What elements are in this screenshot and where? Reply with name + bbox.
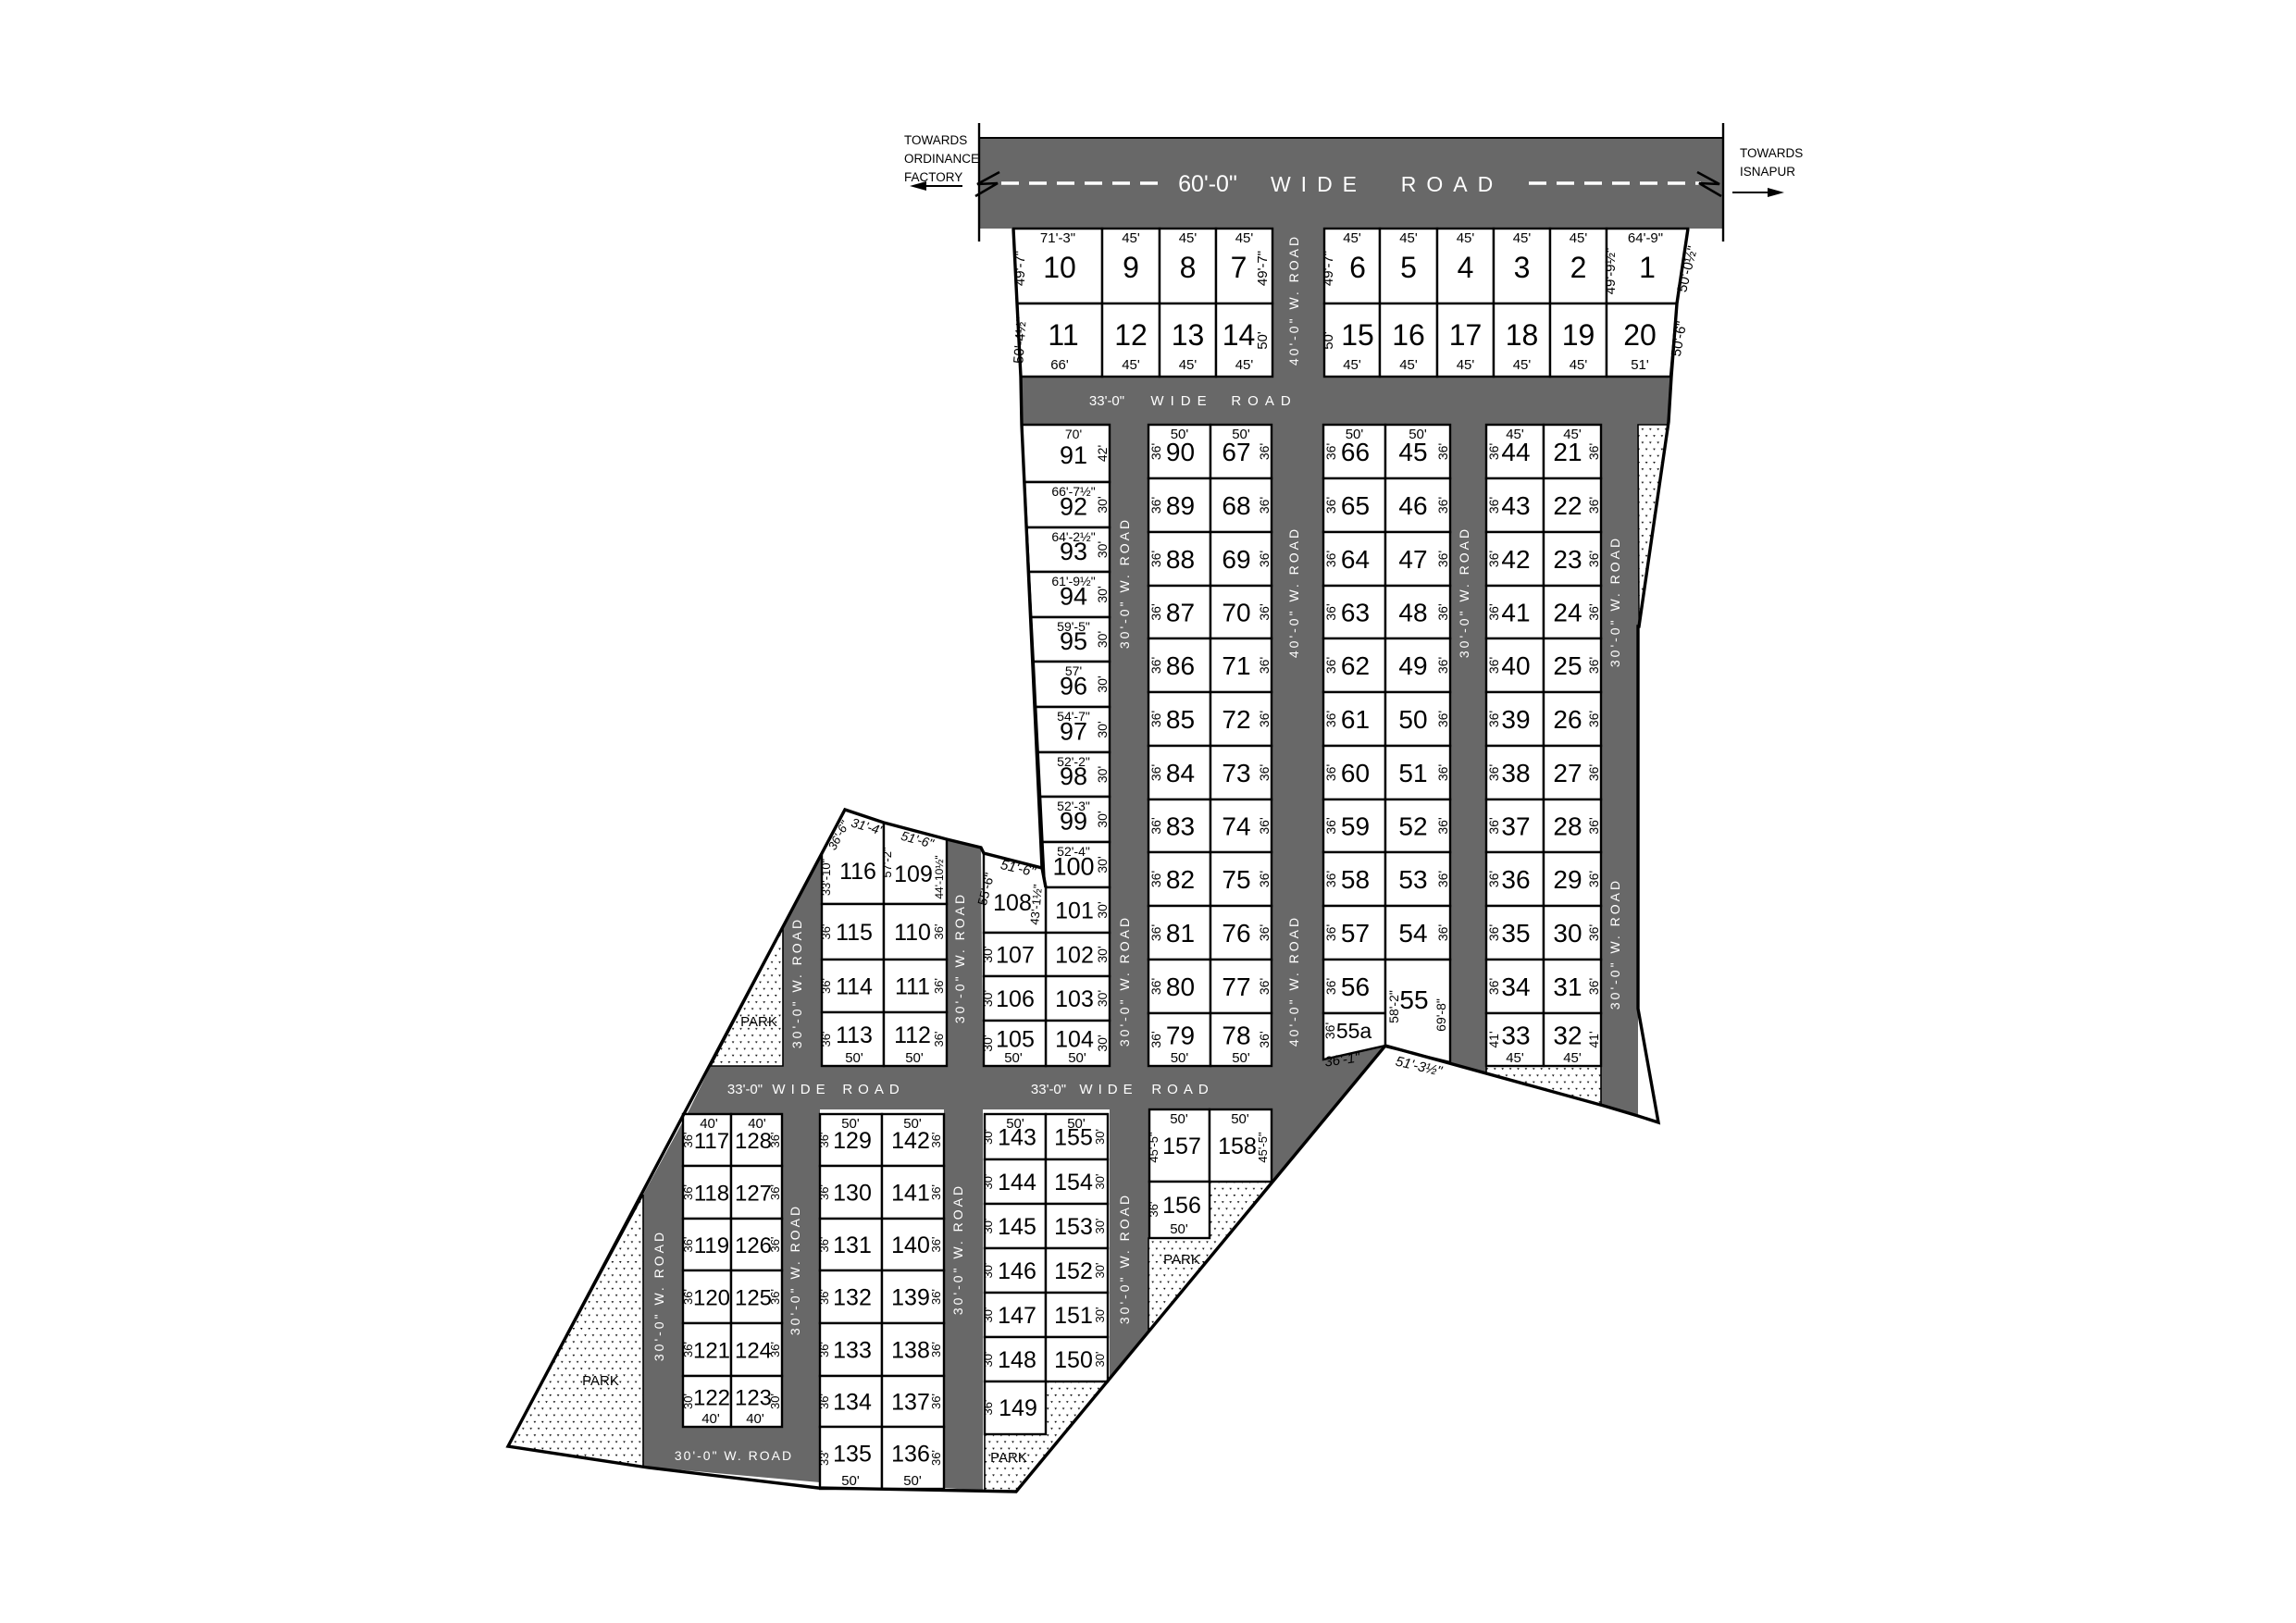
svg-text:36': 36' <box>1257 711 1272 727</box>
svg-text:138: 138 <box>891 1338 930 1364</box>
svg-text:45': 45' <box>1122 357 1140 373</box>
svg-text:36': 36' <box>817 1237 831 1253</box>
svg-text:149: 149 <box>999 1395 1037 1421</box>
svg-text:45': 45' <box>1570 230 1588 246</box>
svg-text:36': 36' <box>1257 817 1272 834</box>
svg-text:30'-0" W. ROAD: 30'-0" W. ROAD <box>1117 1193 1132 1324</box>
svg-text:144: 144 <box>998 1170 1036 1196</box>
svg-text:30': 30' <box>1095 946 1110 962</box>
svg-text:41': 41' <box>1586 1031 1601 1047</box>
svg-text:36': 36' <box>1435 924 1450 941</box>
svg-text:36': 36' <box>932 978 946 994</box>
svg-text:36': 36' <box>1586 924 1601 941</box>
svg-text:12: 12 <box>1114 318 1148 352</box>
svg-text:54: 54 <box>1398 919 1427 948</box>
svg-text:36': 36' <box>929 1450 943 1466</box>
svg-text:147: 147 <box>998 1303 1036 1329</box>
svg-text:125: 125 <box>735 1286 772 1311</box>
svg-text:3: 3 <box>1514 251 1531 284</box>
svg-text:129: 129 <box>833 1128 872 1154</box>
svg-text:52'-4": 52'-4" <box>1057 844 1090 859</box>
svg-text:36': 36' <box>1486 924 1501 941</box>
svg-text:45': 45' <box>1399 230 1418 246</box>
svg-text:30': 30' <box>1095 856 1110 873</box>
svg-text:28: 28 <box>1553 812 1582 841</box>
svg-text:82: 82 <box>1166 865 1195 894</box>
svg-text:45': 45' <box>1457 357 1475 373</box>
svg-text:30'-0" W. ROAD: 30'-0" W. ROAD <box>950 1183 965 1315</box>
svg-text:55a: 55a <box>1336 1019 1372 1043</box>
svg-text:134: 134 <box>833 1390 872 1416</box>
svg-text:110: 110 <box>894 920 931 946</box>
svg-text:117: 117 <box>694 1129 729 1154</box>
svg-text:33'-0": 33'-0" <box>1031 1082 1066 1097</box>
svg-text:33: 33 <box>1501 1022 1530 1050</box>
svg-text:36': 36' <box>819 1032 833 1047</box>
svg-text:36': 36' <box>1148 978 1163 995</box>
svg-text:30'-0" W. ROAD: 30'-0" W. ROAD <box>789 917 804 1048</box>
svg-text:23: 23 <box>1553 545 1582 574</box>
svg-text:PARK: PARK <box>582 1373 619 1389</box>
svg-text:15: 15 <box>1341 318 1374 352</box>
svg-text:36': 36' <box>981 1400 995 1416</box>
svg-text:60'-0": 60'-0" <box>1178 171 1237 197</box>
svg-text:36': 36' <box>1148 817 1163 834</box>
svg-text:54'-7": 54'-7" <box>1057 709 1090 724</box>
svg-text:104: 104 <box>1055 1027 1094 1053</box>
svg-text:36': 36' <box>681 1133 695 1148</box>
svg-text:36': 36' <box>681 1237 695 1253</box>
svg-text:34: 34 <box>1501 973 1530 1001</box>
svg-text:50': 50' <box>845 1050 863 1066</box>
svg-text:40': 40' <box>746 1411 764 1427</box>
svg-text:45': 45' <box>1179 357 1198 373</box>
svg-text:36': 36' <box>1257 871 1272 887</box>
svg-text:45': 45' <box>1235 357 1254 373</box>
svg-text:58'-2": 58'-2" <box>1386 990 1401 1023</box>
svg-text:112: 112 <box>894 1022 931 1048</box>
svg-text:154: 154 <box>1054 1170 1093 1196</box>
svg-text:50': 50' <box>903 1473 922 1489</box>
svg-text:30': 30' <box>1095 1035 1110 1051</box>
svg-text:36': 36' <box>1435 711 1450 727</box>
svg-text:30': 30' <box>981 1174 995 1190</box>
svg-text:36': 36' <box>1586 443 1601 460</box>
svg-text:88: 88 <box>1166 545 1195 574</box>
svg-text:33'-0": 33'-0" <box>727 1082 763 1097</box>
svg-text:36': 36' <box>1323 871 1338 887</box>
svg-text:115: 115 <box>836 920 873 946</box>
svg-text:10: 10 <box>1043 251 1076 284</box>
svg-text:75: 75 <box>1222 865 1250 894</box>
svg-text:30': 30' <box>1093 1219 1107 1234</box>
svg-text:24: 24 <box>1553 599 1582 627</box>
svg-text:41': 41' <box>1486 1031 1501 1047</box>
svg-text:30': 30' <box>1093 1263 1107 1279</box>
svg-text:40': 40' <box>748 1116 766 1132</box>
svg-text:36': 36' <box>1257 978 1272 995</box>
svg-text:152: 152 <box>1054 1258 1093 1284</box>
svg-text:30'-0" W. ROAD: 30'-0" W. ROAD <box>788 1204 802 1335</box>
svg-text:36': 36' <box>1148 551 1163 567</box>
svg-text:36': 36' <box>1586 817 1601 834</box>
svg-text:9: 9 <box>1123 251 1139 284</box>
svg-text:36': 36' <box>1257 603 1272 620</box>
svg-text:2: 2 <box>1570 251 1587 284</box>
svg-text:50': 50' <box>1067 1116 1086 1132</box>
svg-text:158: 158 <box>1218 1134 1257 1159</box>
svg-text:45': 45' <box>1343 230 1361 246</box>
svg-text:36': 36' <box>1323 657 1338 674</box>
svg-text:36': 36' <box>817 1342 831 1357</box>
svg-text:36': 36' <box>681 1184 695 1200</box>
svg-text:150: 150 <box>1054 1347 1093 1373</box>
svg-text:33': 33' <box>817 1450 831 1466</box>
svg-text:30': 30' <box>1095 901 1110 918</box>
svg-text:30': 30' <box>1093 1352 1107 1368</box>
svg-text:42: 42 <box>1501 545 1530 574</box>
svg-text:36': 36' <box>1486 817 1501 834</box>
svg-text:30'-0" W. ROAD: 30'-0" W. ROAD <box>1607 878 1622 1010</box>
svg-text:52'-3": 52'-3" <box>1057 799 1090 813</box>
svg-text:33'-0": 33'-0" <box>1089 393 1124 409</box>
svg-text:107: 107 <box>996 943 1035 969</box>
svg-text:36': 36' <box>1257 443 1272 460</box>
svg-text:36': 36' <box>681 1342 695 1357</box>
svg-text:44'-10½": 44'-10½" <box>933 855 946 898</box>
svg-text:30'-0" W. ROAD: 30'-0" W. ROAD <box>1117 915 1132 1047</box>
svg-text:30': 30' <box>1095 811 1110 827</box>
svg-text:36': 36' <box>1435 603 1450 620</box>
svg-text:142: 142 <box>891 1128 930 1154</box>
svg-text:30': 30' <box>1095 541 1110 558</box>
svg-text:36': 36' <box>817 1394 831 1409</box>
svg-text:45': 45' <box>1399 357 1418 373</box>
svg-text:45': 45' <box>1513 357 1532 373</box>
svg-text:71'-3": 71'-3" <box>1040 230 1075 246</box>
svg-text:50': 50' <box>1170 1221 1188 1237</box>
svg-text:36': 36' <box>1435 871 1450 887</box>
svg-text:45': 45' <box>1506 1050 1524 1066</box>
svg-text:40'-0" W. ROAD: 40'-0" W. ROAD <box>1286 234 1301 365</box>
svg-text:1: 1 <box>1639 251 1656 284</box>
svg-text:116: 116 <box>839 859 876 885</box>
svg-text:8: 8 <box>1180 251 1197 284</box>
svg-text:36': 36' <box>681 1289 695 1305</box>
svg-text:35: 35 <box>1501 919 1530 948</box>
svg-text:57': 57' <box>1065 663 1082 678</box>
svg-text:40': 40' <box>701 1411 720 1427</box>
svg-text:36': 36' <box>1486 711 1501 727</box>
svg-text:30': 30' <box>1095 631 1110 648</box>
svg-text:36': 36' <box>929 1237 943 1253</box>
svg-text:PARK: PARK <box>990 1450 1027 1466</box>
svg-text:36': 36' <box>1586 603 1601 620</box>
svg-text:50': 50' <box>1004 1050 1023 1066</box>
svg-text:86: 86 <box>1166 651 1195 680</box>
svg-text:30': 30' <box>981 1307 995 1323</box>
svg-text:20: 20 <box>1623 318 1657 352</box>
svg-text:156: 156 <box>1162 1193 1201 1219</box>
svg-text:36': 36' <box>817 1184 831 1200</box>
svg-text:120: 120 <box>693 1286 730 1311</box>
svg-text:30': 30' <box>1095 675 1110 692</box>
svg-text:45': 45' <box>1563 1050 1582 1066</box>
svg-text:FACTORY: FACTORY <box>904 170 962 184</box>
svg-text:40'-0" W. ROAD: 40'-0" W. ROAD <box>1286 915 1301 1047</box>
svg-text:122: 122 <box>693 1386 730 1411</box>
svg-text:36': 36' <box>768 1342 782 1357</box>
svg-text:ISNAPUR: ISNAPUR <box>1740 165 1795 179</box>
svg-text:50': 50' <box>1171 1050 1189 1066</box>
svg-text:36': 36' <box>1148 497 1163 514</box>
svg-text:14: 14 <box>1222 318 1256 352</box>
svg-text:30'-0" W. ROAD: 30'-0" W. ROAD <box>1607 536 1622 667</box>
svg-text:105: 105 <box>996 1027 1035 1053</box>
svg-text:85: 85 <box>1166 705 1195 734</box>
svg-text:157: 157 <box>1162 1134 1201 1159</box>
svg-text:50': 50' <box>841 1473 860 1489</box>
svg-text:109: 109 <box>894 861 933 887</box>
svg-text:48: 48 <box>1398 599 1427 627</box>
svg-text:30': 30' <box>1093 1174 1107 1190</box>
svg-text:87: 87 <box>1166 599 1195 627</box>
svg-text:136: 136 <box>891 1442 930 1468</box>
svg-text:36': 36' <box>1147 1202 1160 1218</box>
svg-text:36': 36' <box>929 1133 943 1148</box>
svg-text:123: 123 <box>735 1386 772 1411</box>
svg-text:WIDE: WIDE <box>772 1082 830 1097</box>
svg-text:30': 30' <box>681 1394 695 1409</box>
svg-text:36': 36' <box>1586 871 1601 887</box>
svg-text:36': 36' <box>1435 497 1450 514</box>
svg-text:36': 36' <box>817 1133 831 1148</box>
svg-text:30': 30' <box>1095 766 1110 783</box>
svg-text:65: 65 <box>1341 491 1370 520</box>
svg-text:50': 50' <box>903 1116 922 1132</box>
svg-text:66': 66' <box>1050 357 1069 373</box>
svg-text:49'-7": 49'-7" <box>1321 251 1336 286</box>
svg-text:36': 36' <box>1486 764 1501 781</box>
svg-text:121: 121 <box>693 1339 730 1364</box>
svg-text:58: 58 <box>1341 865 1370 894</box>
svg-text:74: 74 <box>1222 812 1250 841</box>
svg-text:36': 36' <box>1323 978 1338 995</box>
svg-text:46: 46 <box>1398 491 1427 520</box>
svg-text:WIDE: WIDE <box>1271 172 1367 196</box>
svg-text:25: 25 <box>1553 651 1582 680</box>
svg-text:36': 36' <box>1435 764 1450 781</box>
svg-text:50: 50 <box>1398 705 1427 734</box>
svg-text:51: 51 <box>1398 759 1427 787</box>
svg-text:153: 153 <box>1054 1214 1093 1240</box>
svg-text:59: 59 <box>1341 812 1370 841</box>
svg-text:61: 61 <box>1341 705 1370 734</box>
svg-text:7: 7 <box>1231 251 1247 284</box>
svg-text:50': 50' <box>841 1116 860 1132</box>
svg-text:57'-2": 57'-2" <box>880 847 894 878</box>
svg-text:36': 36' <box>819 978 833 994</box>
svg-text:64: 64 <box>1341 545 1370 574</box>
svg-text:103: 103 <box>1055 986 1094 1012</box>
svg-text:ROAD: ROAD <box>1151 1082 1213 1097</box>
svg-text:145: 145 <box>998 1214 1036 1240</box>
svg-text:36': 36' <box>1148 924 1163 941</box>
svg-text:36': 36' <box>1148 1031 1163 1047</box>
svg-text:89: 89 <box>1166 491 1195 520</box>
svg-text:140: 140 <box>891 1233 930 1258</box>
svg-text:30': 30' <box>1095 586 1110 602</box>
svg-text:55: 55 <box>1399 985 1428 1014</box>
svg-text:30'-0" W. ROAD: 30'-0" W. ROAD <box>1117 517 1132 649</box>
svg-text:30: 30 <box>1553 919 1582 948</box>
svg-text:108: 108 <box>993 890 1032 916</box>
svg-text:16: 16 <box>1392 318 1425 352</box>
svg-text:130: 130 <box>833 1181 872 1207</box>
svg-text:40: 40 <box>1501 651 1530 680</box>
svg-text:30': 30' <box>981 1352 995 1368</box>
svg-text:77: 77 <box>1222 973 1250 1001</box>
svg-text:81: 81 <box>1166 919 1195 948</box>
svg-text:132: 132 <box>833 1285 872 1311</box>
svg-text:19: 19 <box>1562 318 1595 352</box>
svg-text:53: 53 <box>1398 865 1427 894</box>
svg-text:51': 51' <box>1631 357 1649 373</box>
svg-text:36': 36' <box>1323 603 1338 620</box>
svg-text:36': 36' <box>817 1289 831 1305</box>
svg-text:30': 30' <box>1095 721 1110 737</box>
svg-text:49'-7": 49'-7" <box>1255 251 1271 286</box>
svg-text:52: 52 <box>1398 812 1427 841</box>
svg-text:30'-0" W. ROAD: 30'-0" W. ROAD <box>675 1448 793 1463</box>
svg-text:18: 18 <box>1506 318 1539 352</box>
svg-text:30': 30' <box>1095 496 1110 513</box>
svg-text:126: 126 <box>735 1233 772 1258</box>
svg-text:102: 102 <box>1055 943 1094 969</box>
svg-text:50': 50' <box>1232 1050 1250 1066</box>
svg-text:84: 84 <box>1166 759 1195 787</box>
svg-text:30': 30' <box>980 1035 995 1051</box>
svg-text:63: 63 <box>1341 599 1370 627</box>
svg-text:30'-0" W. ROAD: 30'-0" W. ROAD <box>1457 527 1471 658</box>
svg-text:146: 146 <box>998 1258 1036 1284</box>
svg-text:36': 36' <box>1586 711 1601 727</box>
svg-text:4: 4 <box>1458 251 1474 284</box>
svg-text:45': 45' <box>1122 230 1140 246</box>
svg-text:50': 50' <box>905 1050 924 1066</box>
svg-text:36': 36' <box>1486 657 1501 674</box>
svg-text:50': 50' <box>1232 427 1250 442</box>
svg-text:TOWARDS: TOWARDS <box>904 133 967 147</box>
svg-text:76: 76 <box>1222 919 1250 948</box>
svg-text:TOWARDS: TOWARDS <box>1740 146 1803 160</box>
svg-text:36': 36' <box>1486 497 1501 514</box>
svg-text:45': 45' <box>1179 230 1198 246</box>
svg-text:30': 30' <box>980 990 995 1007</box>
svg-text:137: 137 <box>891 1390 930 1416</box>
svg-text:45': 45' <box>1235 230 1254 246</box>
svg-text:38: 38 <box>1501 759 1530 787</box>
svg-text:45': 45' <box>1457 230 1475 246</box>
svg-text:50': 50' <box>1255 331 1271 350</box>
svg-text:36: 36 <box>1501 865 1530 894</box>
svg-text:29: 29 <box>1553 865 1582 894</box>
svg-text:124: 124 <box>735 1339 772 1364</box>
svg-text:56: 56 <box>1341 973 1370 1001</box>
svg-text:118: 118 <box>694 1182 729 1207</box>
svg-text:36': 36' <box>1148 711 1163 727</box>
svg-text:ROAD: ROAD <box>842 1082 904 1097</box>
svg-text:22: 22 <box>1553 491 1582 520</box>
svg-text:127: 127 <box>735 1182 772 1207</box>
svg-text:78: 78 <box>1222 1022 1250 1050</box>
svg-text:36': 36' <box>1148 603 1163 620</box>
svg-text:36': 36' <box>1323 443 1338 460</box>
svg-text:36': 36' <box>1586 657 1601 674</box>
svg-text:36': 36' <box>1323 711 1338 727</box>
svg-text:36': 36' <box>1323 764 1338 781</box>
svg-text:WIDE: WIDE <box>1150 393 1212 409</box>
svg-text:40': 40' <box>700 1116 718 1132</box>
svg-text:50': 50' <box>1170 1111 1188 1127</box>
svg-text:36': 36' <box>929 1289 943 1305</box>
svg-text:57: 57 <box>1341 919 1370 948</box>
svg-text:50': 50' <box>1068 1050 1086 1066</box>
svg-text:PARK: PARK <box>740 1014 777 1030</box>
svg-text:50': 50' <box>1006 1116 1024 1132</box>
svg-text:36': 36' <box>1435 657 1450 674</box>
svg-text:36': 36' <box>929 1342 943 1357</box>
svg-text:45': 45' <box>1343 357 1361 373</box>
svg-text:70: 70 <box>1222 599 1250 627</box>
svg-text:36': 36' <box>1586 551 1601 567</box>
svg-text:139: 139 <box>891 1285 930 1311</box>
svg-text:32: 32 <box>1553 1022 1582 1050</box>
svg-text:ROAD: ROAD <box>1401 172 1503 196</box>
svg-text:50': 50' <box>1409 427 1427 442</box>
svg-text:31: 31 <box>1553 973 1582 1001</box>
svg-text:36': 36' <box>1486 978 1501 995</box>
svg-text:42': 42' <box>1095 445 1110 462</box>
svg-text:17: 17 <box>1449 318 1483 352</box>
svg-text:113: 113 <box>836 1022 873 1048</box>
svg-text:50': 50' <box>1171 427 1189 442</box>
svg-text:36': 36' <box>1257 657 1272 674</box>
svg-text:36': 36' <box>1486 551 1501 567</box>
svg-text:36': 36' <box>768 1184 782 1200</box>
svg-text:69: 69 <box>1222 545 1250 574</box>
svg-text:79: 79 <box>1166 1022 1195 1050</box>
svg-text:141: 141 <box>891 1181 930 1207</box>
svg-text:131: 131 <box>833 1233 872 1258</box>
svg-text:45'-5": 45'-5" <box>1147 1132 1160 1163</box>
svg-text:73: 73 <box>1222 759 1250 787</box>
svg-text:91: 91 <box>1060 441 1087 469</box>
svg-text:101: 101 <box>1055 898 1094 924</box>
svg-text:36': 36' <box>932 1032 946 1047</box>
svg-text:36': 36' <box>1435 443 1450 460</box>
svg-text:30': 30' <box>981 1219 995 1234</box>
svg-text:36': 36' <box>1322 1022 1337 1039</box>
svg-text:30': 30' <box>981 1263 995 1279</box>
svg-text:WIDE: WIDE <box>1079 1082 1137 1097</box>
svg-text:64'-2½": 64'-2½" <box>1051 529 1095 544</box>
svg-text:ORDINANCE: ORDINANCE <box>904 152 979 166</box>
svg-text:111: 111 <box>895 974 930 1000</box>
svg-text:61'-9½": 61'-9½" <box>1051 574 1095 588</box>
svg-text:45': 45' <box>1563 427 1582 442</box>
svg-text:43: 43 <box>1501 491 1530 520</box>
